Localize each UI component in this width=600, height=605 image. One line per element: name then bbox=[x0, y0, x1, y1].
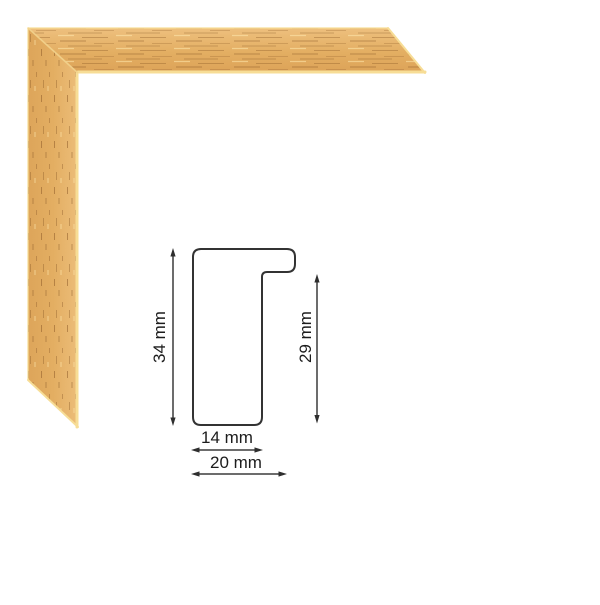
dim-label-body-width: 14 mm bbox=[201, 428, 253, 447]
arrow-left-icon bbox=[191, 471, 200, 476]
dim-label-rabbet-height: 29 mm bbox=[296, 311, 315, 363]
moulding-top-rail-grain bbox=[28, 28, 425, 73]
moulding-top-rail bbox=[28, 28, 425, 73]
arrow-up-icon bbox=[314, 274, 319, 283]
arrow-right-icon bbox=[255, 447, 264, 452]
arrow-up-icon bbox=[170, 248, 175, 257]
arrow-left-icon bbox=[191, 447, 200, 452]
product-image: 34 mm 29 mm 14 mm 20 mm bbox=[0, 0, 600, 600]
dim-rabbet-height: 29 mm bbox=[296, 274, 320, 424]
arrow-down-icon bbox=[170, 418, 175, 427]
dim-label-total-width: 20 mm bbox=[210, 453, 262, 472]
dim-total-height: 34 mm bbox=[150, 248, 176, 426]
moulding-left-rail-grain bbox=[28, 28, 78, 427]
moulding-left-rail bbox=[28, 28, 78, 427]
dim-body-width: 14 mm bbox=[191, 428, 263, 453]
profile-outline bbox=[193, 249, 295, 425]
arrow-right-icon bbox=[279, 471, 288, 476]
dim-total-width: 20 mm bbox=[191, 453, 287, 477]
arrow-down-icon bbox=[314, 415, 319, 424]
cross-section-diagram: 34 mm 29 mm 14 mm 20 mm bbox=[150, 248, 320, 477]
dim-label-total-height: 34 mm bbox=[150, 311, 169, 363]
